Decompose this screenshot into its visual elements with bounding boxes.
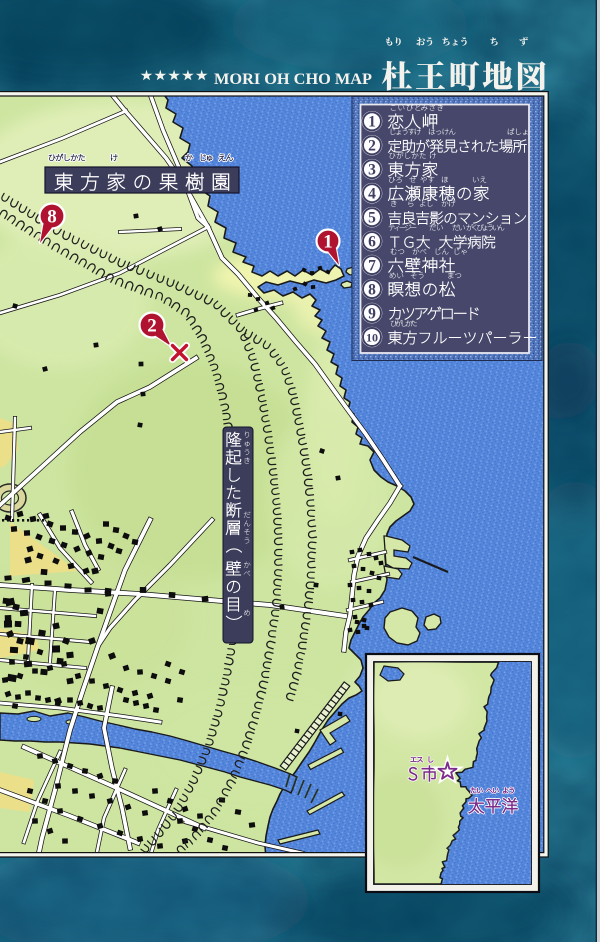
svg-text:3: 3: [368, 161, 376, 178]
svg-text:5: 5: [368, 209, 376, 226]
svg-text:7: 7: [368, 257, 376, 274]
svg-text:8: 8: [47, 207, 57, 228]
svg-text:2: 2: [147, 316, 157, 337]
svg-text:8: 8: [368, 281, 376, 298]
svg-text:1: 1: [368, 114, 376, 131]
svg-text:2: 2: [368, 138, 376, 155]
svg-text:10: 10: [366, 330, 378, 344]
svg-text:1: 1: [323, 232, 333, 253]
svg-text:MORI OH CHO MAP: MORI OH CHO MAP: [214, 71, 372, 88]
svg-text:6: 6: [368, 233, 376, 250]
svg-text:9: 9: [368, 305, 376, 322]
svg-text:4: 4: [368, 185, 376, 202]
